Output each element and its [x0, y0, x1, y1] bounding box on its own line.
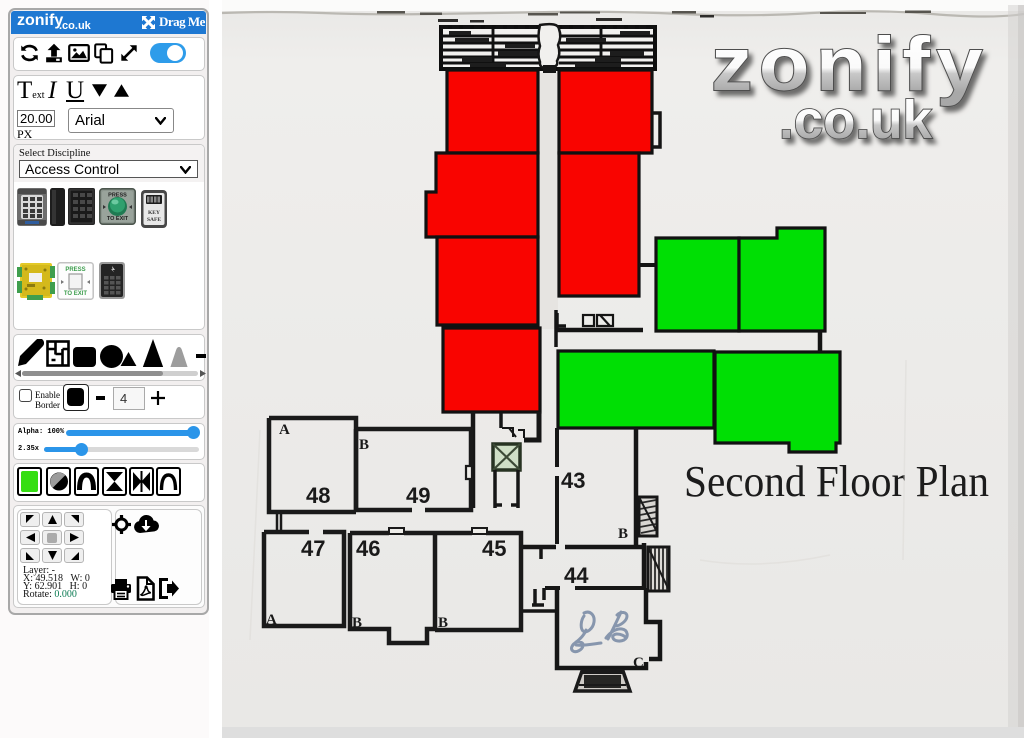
svg-text:SAFE: SAFE: [147, 217, 161, 223]
svg-text:TO EXIT: TO EXIT: [107, 216, 129, 222]
svg-text:B: B: [618, 526, 628, 542]
svg-text:47: 47: [301, 536, 325, 561]
svg-text:KEY: KEY: [148, 210, 160, 216]
svg-text:45: 45: [482, 536, 506, 561]
svg-text:B: B: [352, 615, 362, 631]
svg-text:46: 46: [356, 536, 380, 561]
svg-text:44: 44: [564, 563, 589, 588]
svg-text:B: B: [359, 437, 369, 453]
svg-text:48: 48: [306, 483, 330, 508]
svg-text:B: B: [438, 615, 448, 631]
svg-text:TO EXIT: TO EXIT: [64, 291, 88, 297]
svg-text:A: A: [279, 422, 290, 438]
svg-text:C: C: [633, 655, 644, 671]
svg-text:PRESS: PRESS: [65, 267, 85, 273]
svg-text:.co.uk: .co.uk: [779, 90, 933, 150]
svg-text:Second Floor Plan: Second Floor Plan: [684, 457, 989, 506]
svg-text:A: A: [266, 612, 277, 628]
svg-text:43: 43: [561, 468, 585, 493]
svg-text:49: 49: [406, 483, 430, 508]
